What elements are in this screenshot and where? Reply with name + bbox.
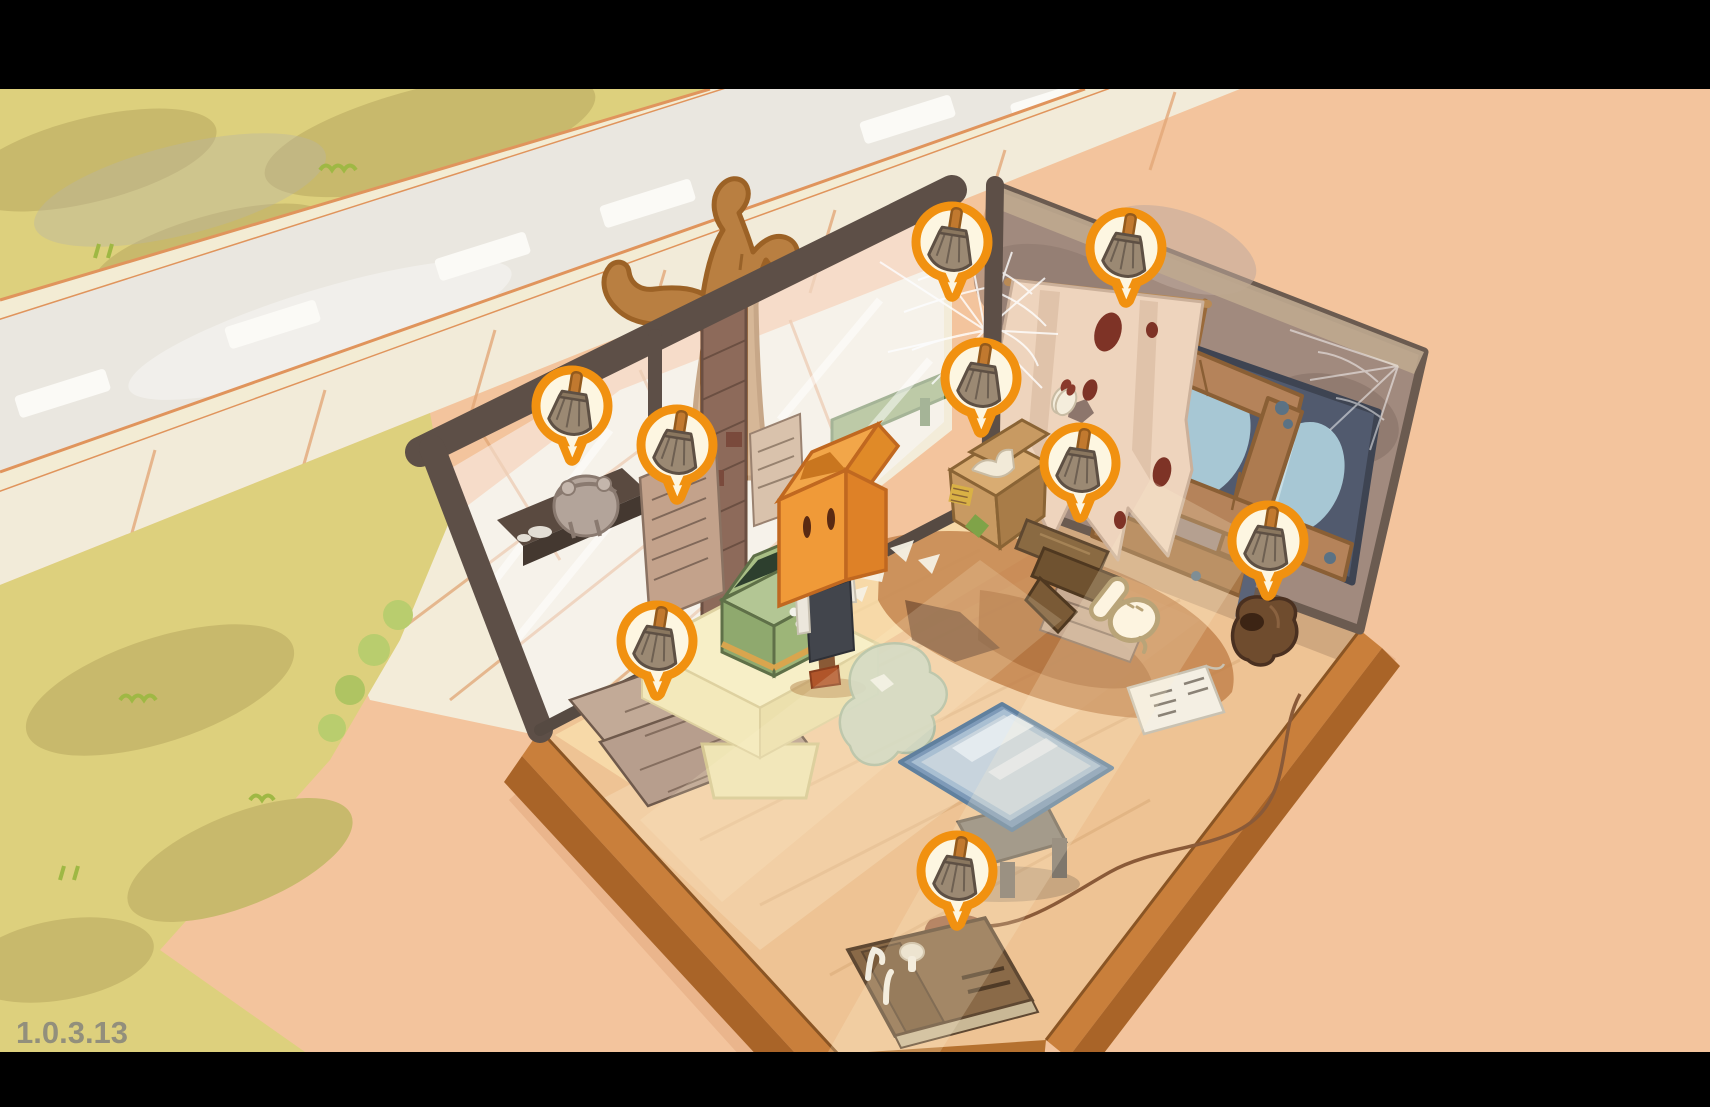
game-scene: 1.0.3.13 xyxy=(0,0,1710,1107)
letterbox-bottom xyxy=(0,1052,1710,1107)
letterbox-top xyxy=(0,0,1710,89)
version-label: 1.0.3.13 xyxy=(16,1015,128,1050)
game-screen: 1.0.3.13 xyxy=(0,0,1710,1107)
